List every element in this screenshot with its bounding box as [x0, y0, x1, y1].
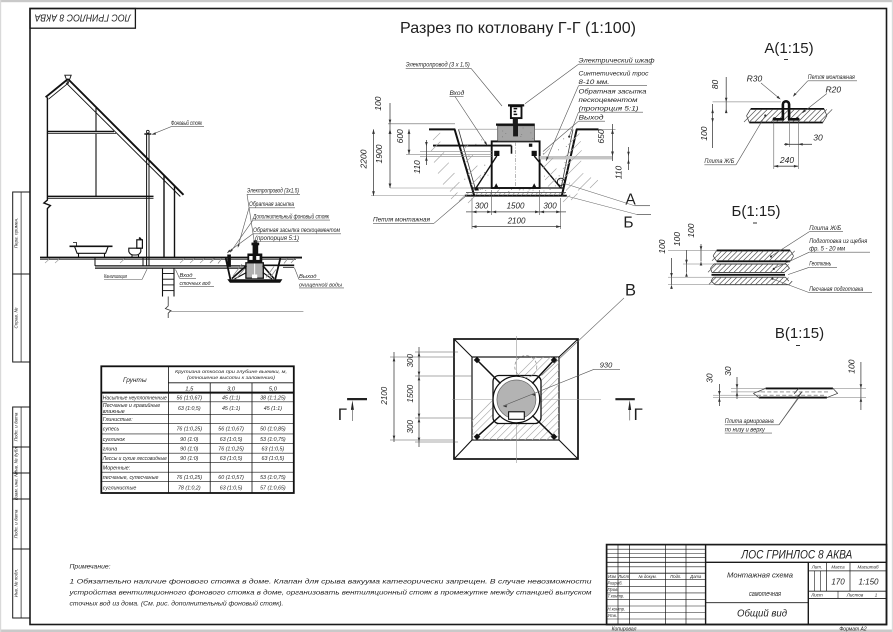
svg-text:600: 600 [395, 129, 405, 143]
svg-text:110: 110 [614, 165, 624, 179]
svg-text:Моренные:: Моренные: [103, 465, 131, 471]
svg-text:Копировал: Копировал [612, 627, 637, 632]
svg-text:Канализация: Канализация [104, 274, 127, 280]
svg-text:Лессы и сухие лессовидные: Лессы и сухие лессовидные [102, 456, 167, 462]
svg-text:Б: Б [623, 215, 633, 232]
svg-text:1900: 1900 [374, 144, 384, 163]
svg-text:170: 170 [831, 578, 845, 587]
svg-text:Б(1:15): Б(1:15) [731, 203, 780, 220]
svg-text:Дата: Дата [689, 574, 702, 579]
svg-text:Вход: Вход [450, 89, 465, 97]
svg-text:Фоновый стояк: Фоновый стояк [171, 119, 203, 127]
svg-text:63 (1:0,5): 63 (1:0,5) [220, 485, 243, 491]
svg-text:Плита армирована: Плита армирована [725, 418, 774, 425]
svg-text:Листов: Листов [846, 593, 864, 598]
svg-text:ЛОС ГРИНЛОС 8 АКВА: ЛОС ГРИНЛОС 8 АКВА [35, 11, 132, 23]
svg-text:Насыпные неуплотненные: Насыпные неуплотненные [103, 396, 167, 402]
svg-text:Разраб.: Разраб. [608, 580, 623, 585]
svg-text:супесь: супесь [103, 427, 120, 433]
svg-text:63 (1:0,5): 63 (1:0,5) [220, 456, 243, 462]
svg-text:Масштаб: Масштаб [857, 565, 878, 570]
svg-text:Синтетический трос: Синтетический трос [579, 70, 650, 78]
svg-text:100: 100 [846, 359, 856, 373]
svg-text:Инв. № дубл.: Инв. № дубл. [14, 446, 19, 474]
svg-text:Г: Г [634, 405, 643, 424]
svg-text:650: 650 [596, 129, 606, 143]
svg-text:1500: 1500 [406, 384, 415, 402]
svg-text:45 (1:1): 45 (1:1) [264, 406, 282, 412]
svg-text:300: 300 [406, 419, 415, 433]
svg-text:суглинок: суглинок [103, 437, 126, 443]
svg-text:Лит.: Лит. [811, 565, 823, 570]
svg-text:63 (1:0,5): 63 (1:0,5) [262, 446, 285, 452]
svg-text:80: 80 [710, 80, 720, 90]
svg-text:суглинистые: суглинистые [103, 485, 137, 491]
svg-text:2200: 2200 [359, 149, 369, 169]
svg-text:Примечание:: Примечание: [70, 564, 111, 571]
svg-text:110: 110 [412, 160, 422, 174]
svg-text:Электропровод (3 х 1,5): Электропровод (3 х 1,5) [406, 61, 470, 69]
svg-text:30: 30 [723, 366, 733, 376]
svg-text:300: 300 [406, 353, 415, 367]
svg-text:30: 30 [813, 133, 823, 143]
svg-text:8-10 мм.: 8-10 мм. [579, 79, 610, 86]
svg-text:90 (1:0): 90 (1:0) [180, 446, 198, 452]
svg-text:Электропровод (3х1,5): Электропровод (3х1,5) [247, 187, 299, 195]
svg-text:100: 100 [373, 96, 383, 110]
svg-text:самотечная: самотечная [749, 589, 781, 598]
svg-text:Плита Ж/Б: Плита Ж/Б [704, 158, 734, 165]
svg-text:Н.контр.: Н.контр. [608, 607, 626, 612]
svg-text:№ докум.: № докум. [638, 574, 656, 579]
svg-text:(отношение высоты к заложению): (отношение высоты к заложению) [187, 375, 275, 381]
svg-text:50 (1:0,85): 50 (1:0,85) [260, 427, 286, 433]
svg-text:Дополнительный фоновый стояк: Дополнительный фоновый стояк [252, 212, 330, 220]
svg-text:Вход: Вход [180, 273, 194, 279]
svg-text:Выход: Выход [299, 274, 317, 280]
svg-text:300: 300 [543, 202, 557, 211]
svg-text:Изм: Изм [608, 574, 616, 579]
svg-text:Лист: Лист [617, 574, 629, 579]
svg-text:1 Обязательно наличие фонового: 1 Обязательно наличие фонового стояка в … [70, 578, 592, 586]
svg-text:63 (1:0,5): 63 (1:0,5) [220, 437, 243, 443]
svg-text:53 (1:0,75): 53 (1:0,75) [260, 475, 286, 481]
svg-text:Подп. и дата: Подп. и дата [14, 509, 19, 538]
svg-text:пескоцементом: пескоцементом [579, 97, 639, 104]
svg-text:Общий вид: Общий вид [737, 608, 787, 620]
svg-text:240: 240 [779, 155, 794, 165]
svg-text:Обратная засыпка пескоцементом: Обратная засыпка пескоцементом [253, 226, 341, 234]
svg-text:Разрез по котловану Г-Г (1:100: Разрез по котловану Г-Г (1:100) [400, 20, 636, 37]
svg-text:Подготовка из щебня: Подготовка из щебня [809, 237, 868, 245]
svg-text:Глинистые:: Глинистые: [103, 417, 133, 423]
svg-text:А(1:15): А(1:15) [764, 40, 813, 57]
svg-text:Пров.: Пров. [608, 587, 619, 592]
svg-text:5,0: 5,0 [269, 386, 278, 392]
svg-text:60 (1:0,57): 60 (1:0,57) [218, 475, 244, 481]
svg-text:Обратная засыпка: Обратная засыпка [579, 88, 648, 96]
svg-text:2100: 2100 [507, 217, 526, 226]
svg-text:Грунты: Грунты [123, 377, 147, 384]
svg-text:53 (1:0,75): 53 (1:0,75) [260, 437, 286, 443]
svg-text:ЛОС ГРИНЛОС 8 АКВА: ЛОС ГРИНЛОС 8 АКВА [740, 549, 852, 561]
svg-text:38 (1:1,25): 38 (1:1,25) [260, 396, 286, 402]
svg-text:30: 30 [704, 373, 714, 383]
svg-text:R30: R30 [747, 74, 763, 84]
svg-text:1: 1 [875, 593, 878, 598]
svg-text:300: 300 [475, 202, 489, 211]
svg-text:R20: R20 [826, 85, 842, 95]
svg-text:100: 100 [672, 232, 682, 246]
svg-text:1:150: 1:150 [858, 578, 879, 587]
svg-text:930: 930 [600, 361, 613, 370]
svg-text:Крутизна откосов при глубине в: Крутизна откосов при глубине выемки, м, [175, 369, 287, 375]
svg-text:100: 100 [699, 126, 709, 140]
svg-text:Т.контр.: Т.контр. [608, 594, 625, 599]
svg-text:(пропорция 5:1): (пропорция 5:1) [579, 106, 639, 113]
svg-text:фр. 5 - 20 мм: фр. 5 - 20 мм [809, 246, 846, 253]
svg-text:100: 100 [657, 239, 667, 253]
svg-text:по низу и верху: по низу и верху [725, 426, 766, 433]
svg-text:очищенной воды: очищенной воды [299, 281, 343, 288]
svg-text:76 (1:0,25): 76 (1:0,25) [176, 475, 202, 481]
svg-text:1500: 1500 [507, 202, 525, 211]
svg-text:Подп. и дата: Подп. и дата [14, 412, 19, 441]
svg-text:В: В [625, 282, 636, 300]
svg-text:песчаные, супесчаные: песчаные, супесчаные [103, 475, 159, 481]
svg-text:В(1:15): В(1:15) [775, 325, 824, 342]
svg-text:56 (1:0,67): 56 (1:0,67) [218, 427, 244, 433]
svg-text:56 (1:0,67): 56 (1:0,67) [176, 396, 202, 402]
svg-text:Петля монтажная: Петля монтажная [373, 217, 430, 224]
svg-text:78 (1:0,2): 78 (1:0,2) [178, 485, 201, 491]
svg-text:Выход: Выход [579, 114, 605, 122]
svg-text:57 (1:0,65): 57 (1:0,65) [260, 485, 286, 491]
svg-text:45 (1:1): 45 (1:1) [222, 396, 240, 402]
svg-text:Лист: Лист [810, 593, 823, 598]
svg-text:Песчаная подготовка: Песчаная подготовка [809, 285, 863, 293]
svg-text:76 (1:0,25): 76 (1:0,25) [176, 427, 202, 433]
svg-text:Утв.: Утв. [608, 613, 618, 618]
svg-text:Г: Г [338, 405, 347, 424]
svg-text:63 (1:0,5): 63 (1:0,5) [262, 456, 285, 462]
svg-text:Масса: Масса [831, 565, 845, 570]
svg-text:устройства вентиляционного фон: устройства вентиляционного фонового стоя… [68, 589, 592, 597]
svg-text:Монтажная схема: Монтажная схема [727, 571, 793, 580]
svg-text:Петля монтажная: Петля монтажная [808, 74, 856, 81]
svg-text:влажные: влажные [103, 409, 125, 415]
svg-text:1,5: 1,5 [185, 386, 194, 392]
svg-text:Обратная засыпка: Обратная засыпка [249, 200, 294, 208]
svg-text:3,0: 3,0 [227, 386, 236, 392]
svg-text:Формат А2: Формат А2 [839, 627, 867, 632]
svg-text:Плита Ж/Б: Плита Ж/Б [809, 225, 841, 232]
svg-text:Подп.: Подп. [670, 574, 681, 579]
svg-text:Перв. примен.: Перв. примен. [14, 218, 19, 249]
svg-text:Геоткань: Геоткань [809, 261, 831, 268]
svg-text:(пропорция 5:1): (пропорция 5:1) [255, 235, 299, 242]
svg-text:Инв. № подл.: Инв. № подл. [14, 569, 19, 598]
svg-text:Взам. инв. №: Взам. инв. № [14, 472, 19, 500]
svg-text:45 (1:1): 45 (1:1) [222, 406, 240, 412]
svg-text:90 (1:0): 90 (1:0) [180, 456, 198, 462]
svg-text:Электрический шкаф: Электрический шкаф [579, 57, 656, 65]
svg-text:100: 100 [686, 223, 696, 237]
svg-text:63 (1:0,5): 63 (1:0,5) [178, 406, 201, 412]
svg-text:глина: глина [103, 446, 117, 452]
svg-text:76 (1:0,25): 76 (1:0,25) [218, 446, 244, 452]
svg-text:Справ. №: Справ. № [14, 308, 19, 329]
svg-text:сточных вод из дома. (См. рис.: сточных вод из дома. (См. рис. дополните… [70, 600, 284, 608]
svg-text:2100: 2100 [380, 386, 389, 405]
svg-text:сточных вод: сточных вод [180, 281, 212, 287]
svg-text:90 (1:0): 90 (1:0) [180, 437, 198, 443]
